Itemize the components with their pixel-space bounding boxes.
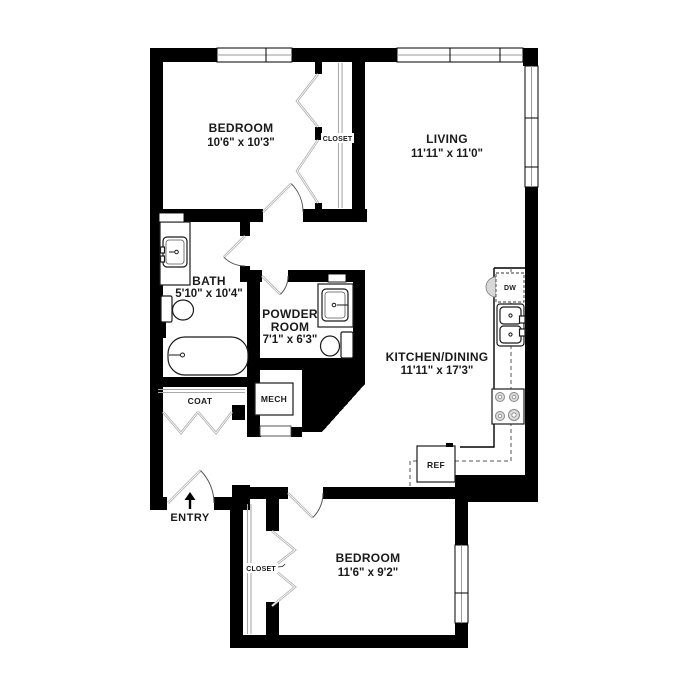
bedroom2-dims: 11'6" x 9'2" bbox=[338, 567, 399, 579]
living-name: LIVING bbox=[426, 132, 468, 146]
bath-wall-niche bbox=[159, 213, 184, 222]
powder-room-door bbox=[262, 276, 288, 294]
powder-vanity-sink bbox=[318, 284, 353, 327]
closet-upper-label: CLOSET bbox=[323, 136, 353, 143]
powder-room-dims: 7'1" x 6'3" bbox=[263, 334, 318, 346]
powder-room-name-line2: ROOM bbox=[271, 320, 310, 334]
coat-closet-bifold-doors bbox=[163, 412, 232, 433]
floor-plan-page: DW REF MECH BEDROOM 10'6" x 10' bbox=[0, 0, 697, 697]
closet-lower-label: CLOSET bbox=[246, 566, 276, 573]
coat-closet-label: COAT bbox=[188, 396, 213, 406]
bedroom1-name: BEDROOM bbox=[209, 121, 274, 135]
closet-upper-bifold-doors bbox=[297, 74, 318, 203]
bedroom1-door bbox=[263, 184, 303, 212]
window-living-right bbox=[525, 66, 538, 187]
floor-plan-svg: DW REF MECH BEDROOM 10'6" x 10' bbox=[0, 0, 697, 697]
mech-closet-door bbox=[260, 426, 291, 436]
refrigerator-label: REF bbox=[427, 460, 445, 470]
powder-wall-niche bbox=[328, 274, 346, 282]
dishwasher-label: DW bbox=[504, 285, 516, 292]
powder-room-name-line1: POWDER bbox=[262, 307, 318, 321]
kitchen-dining-dims: 11'11" x 17'3" bbox=[401, 365, 474, 377]
entry-arrow-icon bbox=[185, 492, 196, 509]
living-dims: 11'11" x 11'0" bbox=[411, 148, 483, 160]
refrigerator: REF bbox=[417, 443, 455, 482]
bath-name: BATH bbox=[192, 274, 226, 288]
bath-dims: 5'10" x 10'4" bbox=[175, 288, 243, 300]
mech-label: MECH bbox=[261, 394, 287, 404]
bedroom2-door bbox=[288, 493, 323, 518]
window-bedroom1 bbox=[217, 48, 292, 62]
window-living-top bbox=[397, 48, 523, 62]
bath-door bbox=[224, 236, 245, 266]
bathtub bbox=[168, 337, 248, 375]
kitchen-dining-name: KITCHEN/DINING bbox=[386, 350, 489, 364]
bath-vanity-sink bbox=[160, 222, 190, 285]
entry-label: ENTRY bbox=[170, 512, 210, 524]
bedroom2-name: BEDROOM bbox=[336, 551, 401, 565]
mech-closet: MECH bbox=[255, 383, 293, 415]
dishwasher: DW bbox=[486, 273, 524, 302]
stove bbox=[492, 389, 524, 424]
bedroom1-dims: 10'6" x 10'3" bbox=[207, 137, 275, 149]
kitchen-sink bbox=[497, 304, 525, 346]
coat-closet-shelf bbox=[158, 390, 245, 393]
closet-lower-leader-line bbox=[278, 564, 285, 567]
powder-toilet bbox=[321, 332, 354, 358]
window-bedroom2 bbox=[455, 545, 468, 623]
